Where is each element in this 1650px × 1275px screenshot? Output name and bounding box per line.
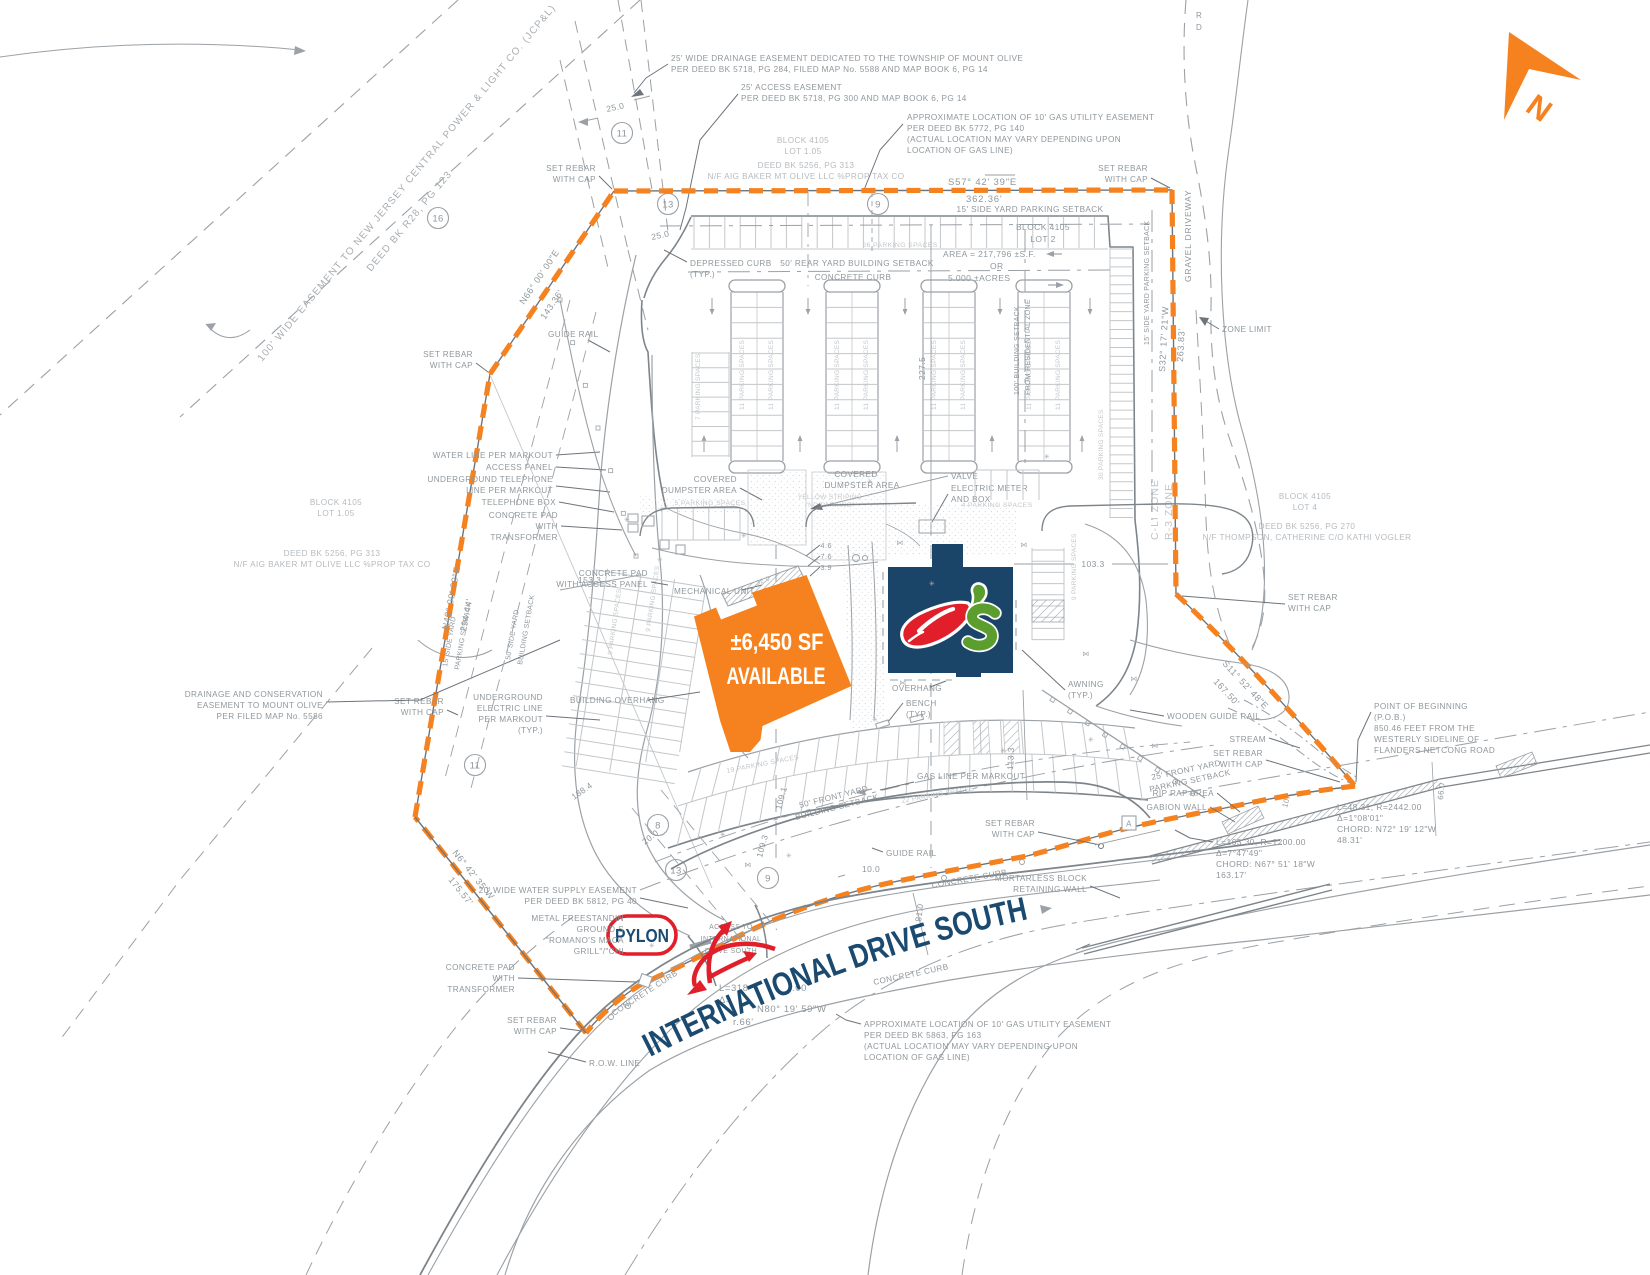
svg-text:⋈: ⋈ [1082, 651, 1089, 658]
svg-text:✳: ✳ [1044, 453, 1050, 461]
svg-text:9 PARKING SPACES: 9 PARKING SPACES [1071, 533, 1078, 600]
svg-text:UNDERGROUND: UNDERGROUND [473, 693, 543, 702]
svg-text:WITH CAP: WITH CAP [514, 1027, 557, 1036]
svg-text:±6,450 SF: ±6,450 SF [731, 629, 824, 656]
svg-text:CHORD: N67° 51' 18"W: CHORD: N67° 51' 18"W [1216, 859, 1315, 869]
svg-text:ACCESS PANEL: ACCESS PANEL [486, 463, 553, 472]
svg-text:Δ=7°47'49": Δ=7°47'49" [1216, 848, 1262, 858]
svg-text:LOT 1.05: LOT 1.05 [317, 509, 354, 518]
svg-text:SET REBAR: SET REBAR [423, 350, 473, 359]
svg-text:7.6: 7.6 [820, 552, 832, 561]
svg-text:227.5: 227.5 [917, 357, 927, 380]
svg-text:GRILL"/"CHI: GRILL"/"CHI [574, 947, 624, 956]
svg-text:SET REBAR: SET REBAR [546, 164, 596, 173]
svg-text:ELECTRIC METER: ELECTRIC METER [951, 484, 1028, 493]
svg-text:POINT OF BEGINNING: POINT OF BEGINNING [1374, 702, 1468, 711]
svg-text:50' REAR YARD BUILDING SETBACK: 50' REAR YARD BUILDING SETBACK [780, 259, 934, 268]
svg-text:100' BUILDING SETBACK: 100' BUILDING SETBACK [1014, 306, 1021, 395]
svg-text:DEED BK 5256, PG 270: DEED BK 5256, PG 270 [1259, 522, 1356, 531]
svg-text:ELECTRIC LINE: ELECTRIC LINE [477, 704, 543, 713]
svg-text:✳: ✳ [1000, 747, 1006, 755]
svg-text:3.9: 3.9 [820, 563, 832, 572]
svg-text:COVERED: COVERED [694, 475, 737, 484]
svg-text:(TYP.): (TYP.) [1068, 691, 1093, 700]
svg-text:11 PARKING SPACES: 11 PARKING SPACES [1055, 340, 1062, 410]
svg-text:SET REBAR: SET REBAR [1098, 164, 1148, 173]
svg-text:APPROXIMATE LOCATION OF 10' GA: APPROXIMATE LOCATION OF 10' GAS UTILITY … [864, 1020, 1111, 1029]
svg-text:LOT 2: LOT 2 [1030, 234, 1055, 244]
svg-text:(TYP.): (TYP.) [690, 270, 715, 279]
svg-text:CONCRETE PAD: CONCRETE PAD [579, 569, 648, 578]
svg-text:163.17': 163.17' [1216, 870, 1246, 880]
svg-text:16: 16 [432, 214, 443, 225]
svg-text:LOCATION OF GAS LINE): LOCATION OF GAS LINE) [864, 1053, 970, 1062]
svg-text:✳: ✳ [786, 852, 792, 860]
svg-text:11 PARKING SPACES: 11 PARKING SPACES [863, 340, 870, 410]
svg-text:11 PARKING SPACES: 11 PARKING SPACES [960, 340, 967, 410]
svg-text:L=163.30, R=1200.00: L=163.30, R=1200.00 [1216, 837, 1306, 847]
svg-text:TRANSFORMER: TRANSFORMER [447, 985, 515, 994]
svg-text:25' ACCESS EASEMENT: 25' ACCESS EASEMENT [741, 83, 842, 92]
svg-text:GABION WALL: GABION WALL [1146, 803, 1207, 812]
svg-text:WITH CAP: WITH CAP [553, 175, 596, 184]
svg-text:COVERED: COVERED [834, 470, 877, 479]
svg-text:PER DEED BK 5863, PG 163: PER DEED BK 5863, PG 163 [864, 1031, 982, 1040]
svg-text:WITH CAP: WITH CAP [401, 708, 444, 717]
svg-text:30 PARKING SPACES: 30 PARKING SPACES [1098, 409, 1105, 480]
svg-text:CONCRETE PAD: CONCRETE PAD [489, 511, 558, 520]
svg-text:PER FILED MAP No. 5586: PER FILED MAP No. 5586 [217, 712, 324, 721]
svg-text:✳: ✳ [867, 478, 873, 486]
svg-text:GAS LINE PER MARKOUT: GAS LINE PER MARKOUT [917, 772, 1025, 781]
svg-text:AWNING: AWNING [1068, 680, 1104, 689]
svg-text:11 PARKING SPACES: 11 PARKING SPACES [834, 340, 841, 410]
svg-text:MORTARLESS BLOCK: MORTARLESS BLOCK [995, 874, 1087, 883]
svg-text:20' WIDE WATER SUPPLY EASEMENT: 20' WIDE WATER SUPPLY EASEMENT [479, 886, 637, 895]
svg-text:⋈: ⋈ [1130, 676, 1137, 683]
svg-text:DUMPSTER AREA: DUMPSTER AREA [824, 481, 899, 490]
svg-text:✳: ✳ [929, 580, 935, 588]
svg-text:DUMPSTER AREA: DUMPSTER AREA [662, 486, 737, 495]
svg-text:WITH ACCESS PANEL: WITH ACCESS PANEL [556, 580, 648, 589]
svg-text:LOT 1.05: LOT 1.05 [784, 147, 821, 156]
svg-text:13: 13 [662, 200, 673, 211]
svg-text:ZONE LIMIT: ZONE LIMIT [1222, 325, 1272, 334]
svg-text:WATER LINE PER MARKOUT: WATER LINE PER MARKOUT [433, 451, 553, 460]
svg-text:⋈: ⋈ [896, 540, 903, 547]
svg-text:C-LI ZONE: C-LI ZONE [1149, 479, 1161, 540]
svg-text:⋈: ⋈ [744, 862, 751, 869]
svg-text:11 PARKING SPACES: 11 PARKING SPACES [768, 340, 775, 410]
svg-text:48.31': 48.31' [1337, 835, 1362, 845]
svg-text:APPROXIMATE LOCATION OF 10' GA: APPROXIMATE LOCATION OF 10' GAS UTILITY … [907, 113, 1154, 122]
svg-text:BLOCK 4105: BLOCK 4105 [1016, 222, 1070, 232]
svg-text:SET REBAR: SET REBAR [507, 1016, 557, 1025]
svg-text:WITH CAP: WITH CAP [430, 361, 473, 370]
svg-text:PER DEED BK 5772, PG 140: PER DEED BK 5772, PG 140 [907, 124, 1025, 133]
svg-text:WITH CAP: WITH CAP [992, 830, 1035, 839]
svg-text:CONCRETE PAD: CONCRETE PAD [446, 963, 515, 972]
svg-text:850.46 FEET FROM THE: 850.46 FEET FROM THE [1374, 724, 1475, 733]
svg-text:PER MARKOUT: PER MARKOUT [479, 715, 543, 724]
svg-text:PER DEED BK 5718, PG 300 AND M: PER DEED BK 5718, PG 300 AND MAP BOOK 6,… [741, 94, 967, 103]
svg-text:LOT 4: LOT 4 [1293, 503, 1318, 512]
svg-text:BLOCK 4105: BLOCK 4105 [310, 498, 362, 507]
svg-text:✳: ✳ [657, 556, 663, 564]
svg-text:GUIDE RAIL: GUIDE RAIL [886, 849, 936, 858]
svg-text:10.0: 10.0 [862, 864, 880, 874]
svg-text:362.36': 362.36' [966, 194, 1002, 205]
svg-text:CONCRETE CURB: CONCRETE CURB [815, 273, 892, 282]
svg-text:LOCATION OF GAS LINE): LOCATION OF GAS LINE) [907, 146, 1013, 155]
svg-text:L=48.31, R=2442.00: L=48.31, R=2442.00 [1337, 802, 1422, 812]
svg-text:PER DEED BK 5718, PG 284, FILE: PER DEED BK 5718, PG 284, FILED MAP No. … [671, 65, 988, 74]
svg-text:R: R [1196, 11, 1202, 20]
svg-text:AREA = 217,796 ±S.F.: AREA = 217,796 ±S.F. [943, 249, 1036, 259]
svg-text:BUILDING OVERHANG: BUILDING OVERHANG [570, 696, 665, 705]
svg-text:FLANDERS NETCONG ROAD: FLANDERS NETCONG ROAD [1374, 746, 1495, 755]
svg-text:S57° 42' 39"E: S57° 42' 39"E [948, 177, 1017, 188]
svg-text:YELLOW STRIPING: YELLOW STRIPING [798, 494, 863, 501]
svg-text:25' WIDE DRAINAGE EASEMENT DED: 25' WIDE DRAINAGE EASEMENT DEDICATED TO … [671, 54, 1023, 63]
svg-text:15' SIDE YARD PARKING SETBACK: 15' SIDE YARD PARKING SETBACK [957, 205, 1104, 214]
svg-text:A: A [1126, 820, 1132, 829]
svg-text:5.000 ±ACRES: 5.000 ±ACRES [948, 273, 1010, 283]
svg-text:SET REBAR: SET REBAR [985, 819, 1035, 828]
svg-text:(ACTUAL LOCATION MAY VARY DEPE: (ACTUAL LOCATION MAY VARY DEPENDING UPON [864, 1042, 1078, 1051]
svg-text:PER DEED BK 5812, PG 40: PER DEED BK 5812, PG 40 [524, 897, 637, 906]
svg-text:TRANSFORMER: TRANSFORMER [490, 533, 558, 542]
svg-text:GRAVEL DRIVEWAY: GRAVEL DRIVEWAY [1183, 190, 1193, 282]
svg-text:WITH: WITH [492, 974, 515, 983]
svg-text:✳: ✳ [872, 716, 878, 724]
svg-text:SET REBAR: SET REBAR [1288, 593, 1338, 602]
svg-text:METAL FREESTANDIN: METAL FREESTANDIN [531, 914, 624, 923]
svg-text:ACCESS TO: ACCESS TO [709, 924, 753, 931]
svg-text:103.3: 103.3 [1081, 559, 1104, 569]
svg-text:✳: ✳ [720, 831, 726, 839]
svg-text:✳: ✳ [624, 516, 630, 524]
svg-text:4.6: 4.6 [820, 541, 832, 550]
svg-text:FROM RESIDENTIAL ZONE: FROM RESIDENTIAL ZONE [1025, 299, 1032, 395]
svg-text:⋈: ⋈ [1020, 542, 1027, 549]
svg-text:WESTERLY SIDELINE OF: WESTERLY SIDELINE OF [1374, 735, 1480, 744]
svg-text:N/F AIG BAKER MT OLIVE LLC %PR: N/F AIG BAKER MT OLIVE LLC %PROP TAX CO [708, 172, 905, 181]
svg-text:66.0: 66.0 [1436, 782, 1446, 800]
svg-text:⋈: ⋈ [899, 680, 906, 687]
svg-text:BLOCK 4105: BLOCK 4105 [1279, 492, 1331, 501]
svg-text:GROUND S: GROUND S [577, 925, 624, 934]
svg-text:BLOCK 4105: BLOCK 4105 [777, 136, 829, 145]
svg-text:SET REBAR: SET REBAR [394, 697, 444, 706]
svg-text:WITH CAP: WITH CAP [1288, 604, 1331, 613]
svg-text:15' SIDE YARD PARKING SETBACK: 15' SIDE YARD PARKING SETBACK [1144, 221, 1151, 345]
svg-text:26 PARKING SPACES: 26 PARKING SPACES [862, 242, 937, 249]
svg-text:9: 9 [875, 200, 881, 211]
svg-text:D: D [1196, 23, 1202, 32]
svg-text:(P.O.B.): (P.O.B.) [1374, 713, 1406, 722]
svg-text:N/F AIG BAKER MT OLIVE LLC %PR: N/F AIG BAKER MT OLIVE LLC %PROP TAX CO [234, 560, 431, 569]
svg-text:Δ=1°08'01": Δ=1°08'01" [1337, 813, 1383, 823]
svg-text:VALVE: VALVE [951, 472, 978, 481]
svg-text:DEED BK 5256, PG 313: DEED BK 5256, PG 313 [284, 549, 381, 558]
svg-text:N/F THOMPSON, CATHERINE C/O KA: N/F THOMPSON, CATHERINE C/O KATHI VOGLER [1203, 533, 1412, 542]
svg-text:11 PARKING SPACES: 11 PARKING SPACES [931, 340, 938, 410]
svg-text:STREAM: STREAM [1229, 735, 1266, 744]
svg-text:CHORD: N72° 19' 12"W: CHORD: N72° 19' 12"W [1337, 824, 1436, 834]
svg-text:DEED BK 5256, PG 313: DEED BK 5256, PG 313 [758, 161, 855, 170]
svg-text:263.83': 263.83' [1175, 328, 1187, 362]
svg-text:(TYP.): (TYP.) [518, 726, 543, 735]
svg-text:113.3: 113.3 [1005, 747, 1016, 770]
svg-text:DRAINAGE AND CONSERVATION: DRAINAGE AND CONSERVATION [185, 690, 323, 699]
svg-text:OR: OR [990, 261, 1004, 271]
svg-text:(ACTUAL LOCATION MAY VARY DEPE: (ACTUAL LOCATION MAY VARY DEPENDING UPON [907, 135, 1121, 144]
svg-text:WITH CAP: WITH CAP [1105, 175, 1148, 184]
svg-text:EASEMENT TO MOUNT OLIVE: EASEMENT TO MOUNT OLIVE [197, 701, 323, 710]
svg-text:11: 11 [617, 129, 628, 140]
svg-text:9: 9 [765, 874, 771, 885]
svg-text:11: 11 [470, 761, 481, 772]
svg-text:✳: ✳ [1088, 736, 1094, 744]
svg-text:✳: ✳ [649, 942, 655, 950]
svg-text:BENCH: BENCH [906, 699, 937, 708]
svg-text:11 PARKING SPACES: 11 PARKING SPACES [739, 340, 746, 410]
svg-text:7 PARKING SPACES: 7 PARKING SPACES [695, 353, 702, 420]
svg-text:DEPRESSED CURB: DEPRESSED CURB [690, 259, 772, 268]
svg-text:"ROMANO'S MACA: "ROMANO'S MACA [546, 936, 624, 945]
svg-text:✳: ✳ [741, 532, 747, 540]
svg-text:AVAILABLE: AVAILABLE [727, 663, 826, 690]
svg-text:R.O.W. LINE: R.O.W. LINE [589, 1059, 640, 1068]
svg-text:SET REBAR: SET REBAR [1213, 749, 1263, 758]
svg-text:⋈: ⋈ [1151, 743, 1158, 750]
svg-text:RETAINING WALL: RETAINING WALL [1013, 885, 1087, 894]
